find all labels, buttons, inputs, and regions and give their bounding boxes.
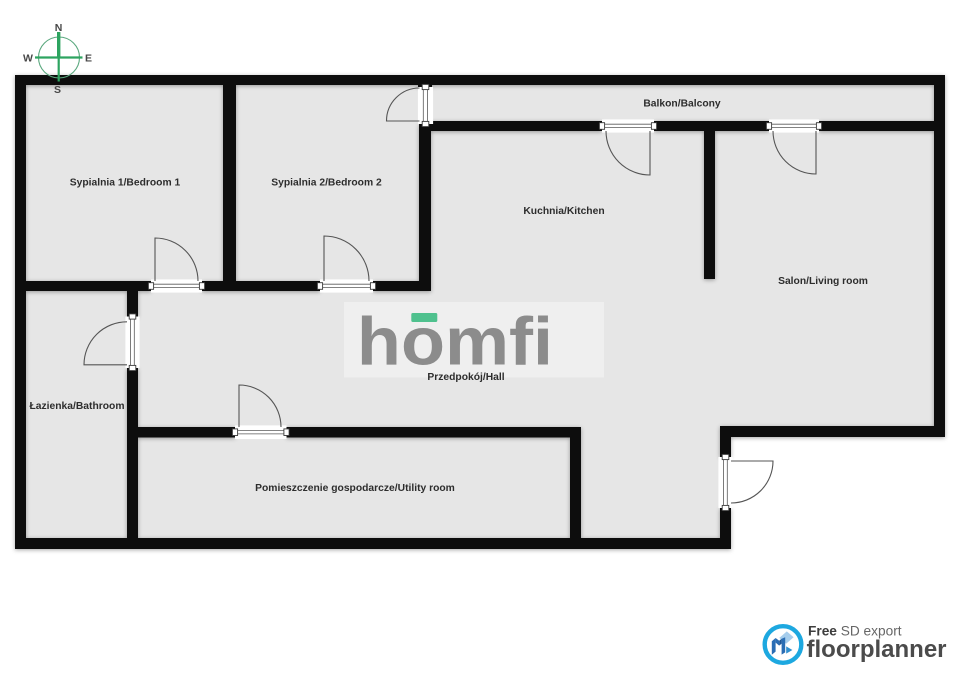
svg-text:Balkon/Balcony: Balkon/Balcony — [643, 99, 721, 110]
svg-text:W: W — [23, 53, 33, 65]
svg-text:S: S — [54, 84, 61, 96]
svg-text:Łazienka/Bathroom: Łazienka/Bathroom — [30, 401, 125, 412]
svg-text:E: E — [85, 53, 92, 65]
svg-text:N: N — [55, 22, 63, 34]
svg-text:homfi: homfi — [357, 303, 553, 379]
svg-text:Sypialnia 2/Bedroom 2: Sypialnia 2/Bedroom 2 — [271, 178, 382, 189]
svg-text:floorplanner: floorplanner — [807, 636, 947, 663]
svg-text:Przedpokój/Hall: Przedpokój/Hall — [427, 372, 504, 383]
svg-text:Sypialnia 1/Bedroom 1: Sypialnia 1/Bedroom 1 — [70, 178, 181, 189]
svg-text:Pomieszczenie gospodarcze/Util: Pomieszczenie gospodarcze/Utility room — [255, 483, 455, 494]
svg-text:Kuchnia/Kitchen: Kuchnia/Kitchen — [523, 206, 604, 217]
svg-text:Salon/Living room: Salon/Living room — [778, 276, 868, 287]
